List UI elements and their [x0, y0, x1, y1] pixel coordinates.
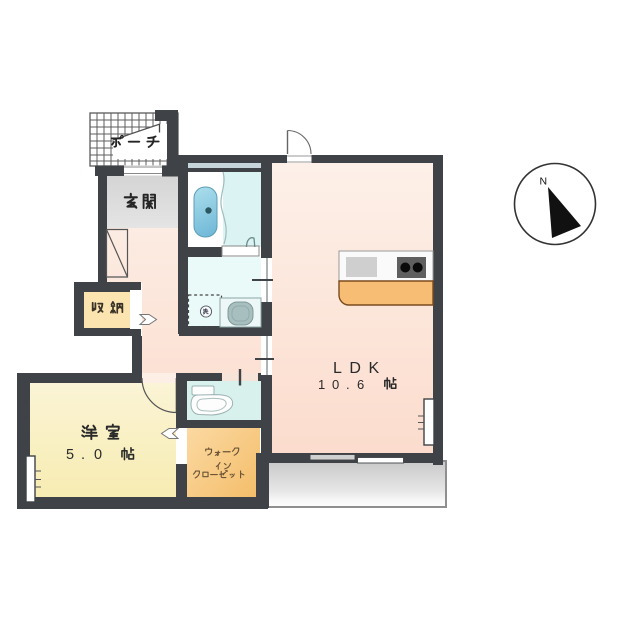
- svg-text:5: 5: [66, 447, 74, 463]
- svg-text:6: 6: [357, 377, 364, 392]
- svg-text:0: 0: [332, 377, 339, 392]
- svg-text:1: 1: [318, 377, 325, 392]
- svg-text:0: 0: [94, 447, 102, 463]
- svg-text:.: .: [346, 377, 350, 392]
- svg-text:LDK: LDK: [333, 360, 387, 377]
- svg-text:N: N: [540, 176, 548, 188]
- svg-text:.: .: [81, 447, 85, 463]
